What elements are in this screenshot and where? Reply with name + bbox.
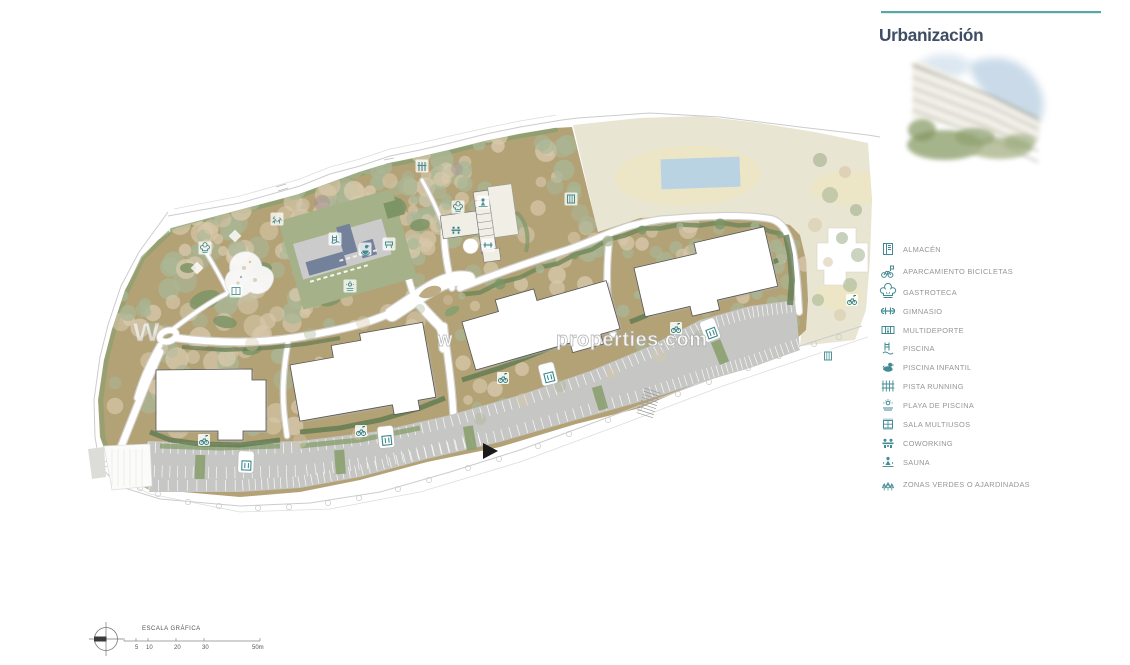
svg-text:w: w (132, 311, 160, 349)
svg-text:PISCINA: PISCINA (903, 344, 935, 353)
svg-text:PISTA RUNNING: PISTA RUNNING (903, 382, 964, 391)
svg-text:properties.com: properties.com (556, 329, 707, 351)
svg-text:10: 10 (146, 645, 153, 651)
svg-text:PISCINA INFANTIL: PISCINA INFANTIL (903, 363, 971, 372)
svg-text:w: w (436, 329, 453, 351)
svg-text:COWORKING: COWORKING (903, 439, 953, 448)
svg-text:MULTIDEPORTE: MULTIDEPORTE (903, 326, 964, 335)
svg-text:SAUNA: SAUNA (903, 458, 930, 467)
svg-text:50m: 50m (252, 645, 264, 651)
svg-text:20: 20 (174, 645, 181, 651)
svg-text:Urbanización: Urbanización (879, 25, 983, 45)
svg-text:ESCALA GRÁFICA: ESCALA GRÁFICA (142, 625, 201, 632)
svg-text:PLAYA DE PISCINA: PLAYA DE PISCINA (903, 401, 974, 410)
svg-text:ALMACÉN: ALMACÉN (903, 245, 941, 254)
svg-text:ZONAS VERDES O AJARDINADAS: ZONAS VERDES O AJARDINADAS (903, 480, 1030, 489)
svg-text:30: 30 (202, 645, 209, 651)
svg-text:GASTROTECA: GASTROTECA (903, 288, 957, 297)
svg-text:GIMNASIO: GIMNASIO (903, 307, 942, 316)
svg-text:SALA MULTIUSOS: SALA MULTIUSOS (903, 420, 970, 429)
svg-text:APARCAMIENTO BICICLETAS: APARCAMIENTO BICICLETAS (903, 267, 1013, 276)
